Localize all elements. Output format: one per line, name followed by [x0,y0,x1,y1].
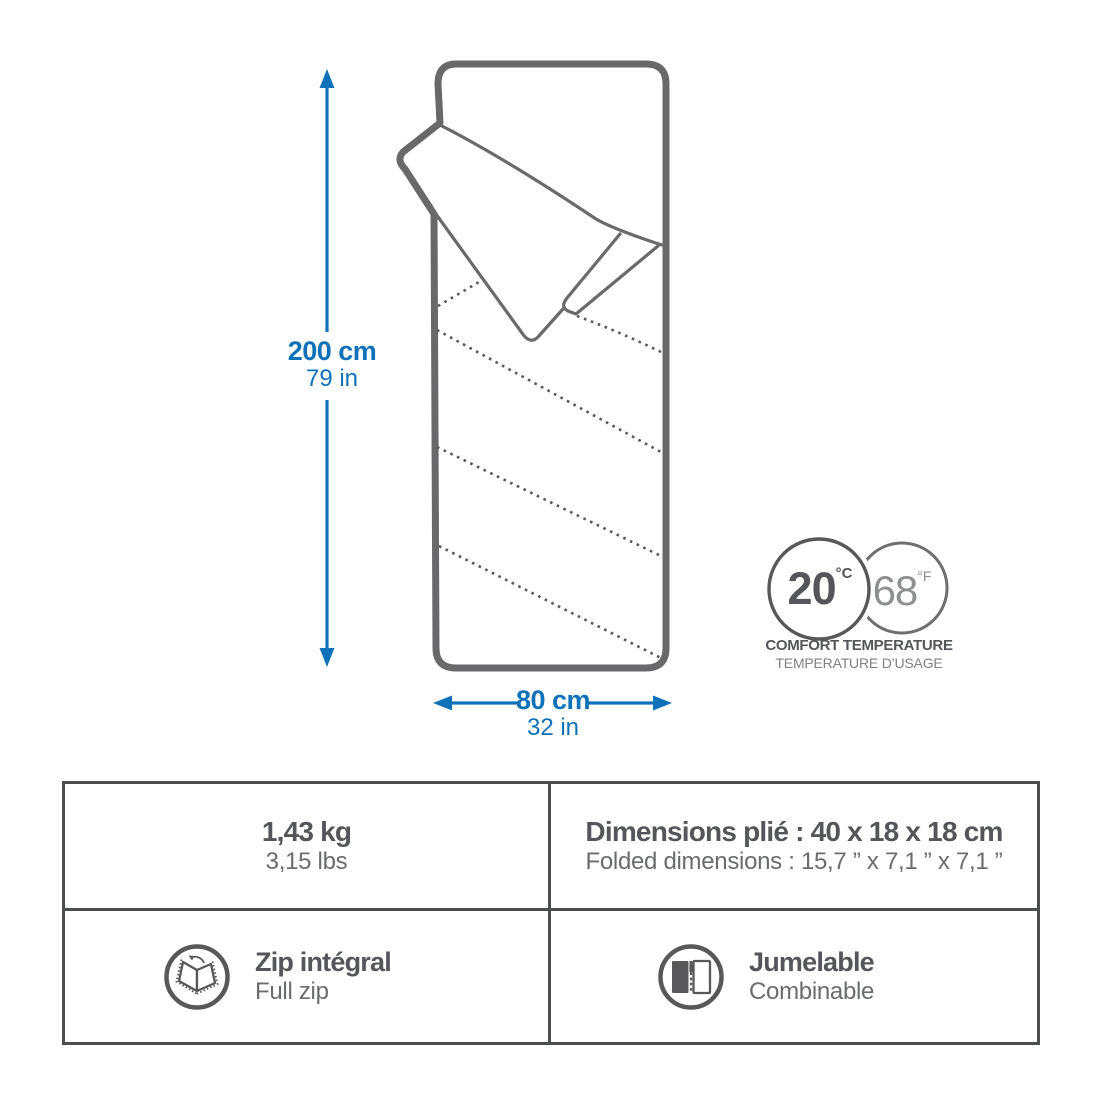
height-imperial: 79 in [252,366,412,392]
folded-secondary: Folded dimensions : 15,7 ” x 7,1 ” x 7,1… [586,848,1003,877]
folded-primary: Dimensions plié : 40 x 18 x 18 cm [585,816,1002,848]
fahrenheit-unit: °F [917,568,931,584]
spec-table: 1,43 kg 3,15 lbs Dimensions plié : 40 x … [62,781,1040,1045]
folded-dimensions-cell: Dimensions plié : 40 x 18 x 18 cm Folded… [551,784,1037,911]
celsius-value: 20 [788,563,836,614]
pairable-cell: Jumelable Combinable [551,911,1037,1042]
comfort-temp-label-en: COMFORT TEMPERATURE [742,637,976,655]
full-zip-cell: Zip intégral Full zip [65,911,551,1042]
weight-cell: 1,43 kg 3,15 lbs [65,784,551,911]
sleeping-bag-drawing [400,64,666,668]
height-label: 200 cm 79 in [252,337,412,392]
comfort-temp-label-fr: TEMPERATURE D’USAGE [742,655,976,672]
height-metric: 200 cm [252,337,412,366]
fahrenheit-value: 68 [873,567,918,614]
width-label: 80 cm 32 in [473,686,633,741]
celsius-temp: 20°C [772,566,868,611]
full-zip-icon [161,941,233,1013]
combinable-icon [655,941,727,1013]
pairable-primary: Jumelable [749,947,874,978]
sleeping-bag-spec-infographic: 200 cm 79 in 80 cm 32 in 20°C 68°F COMFO… [0,0,1100,1100]
comfort-temp-caption: COMFORT TEMPERATURE TEMPERATURE D’USAGE [742,637,976,672]
zip-primary: Zip intégral [255,947,391,978]
weight-primary: 1,43 kg [262,816,351,848]
fahrenheit-temp: 68°F [856,569,948,612]
pairable-secondary: Combinable [749,978,874,1007]
width-metric: 80 cm [473,686,633,715]
zip-secondary: Full zip [255,978,391,1007]
celsius-unit: °C [836,565,853,582]
weight-secondary: 3,15 lbs [266,848,348,877]
width-imperial: 32 in [473,715,633,741]
